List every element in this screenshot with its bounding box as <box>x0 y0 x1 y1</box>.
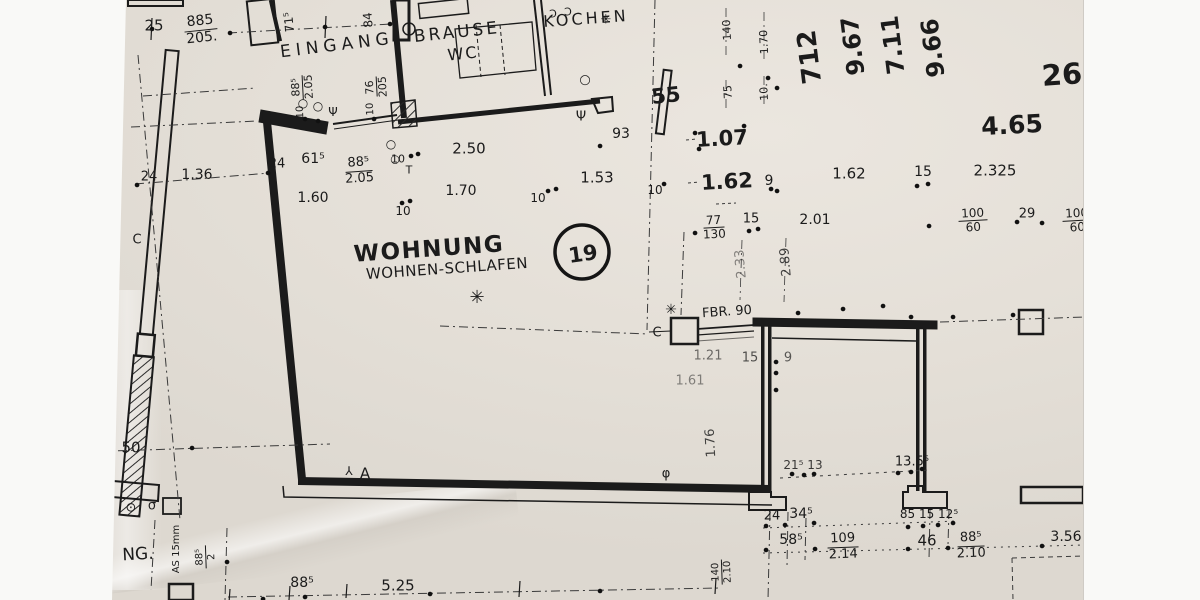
dimension-label: 75 <box>722 85 734 100</box>
door-swing-symbol: ○ <box>390 154 400 165</box>
dimension-fraction: 88⁵2 <box>194 545 218 569</box>
dimension-label: 21⁵ 13 <box>783 459 822 471</box>
dimension-label: 24 <box>141 171 158 184</box>
dimension-label: 140 <box>721 19 733 41</box>
dimension-fraction: 10060 <box>958 206 988 235</box>
dimension-label: 13.5⁵ <box>895 456 929 469</box>
scan-margin-left <box>0 0 130 600</box>
dimension-label: 1.70 <box>445 184 476 198</box>
door-arc-symbol: Ɔ <box>564 7 572 18</box>
dimension-label: 61⁵ <box>301 152 324 166</box>
dimension-label: 55 <box>650 84 681 108</box>
dimension-label: 1.61 <box>676 375 705 388</box>
door-arc-symbol: Ɔ <box>549 9 557 20</box>
dimension-label: 10 <box>395 205 410 217</box>
floor-plan-scan: EINGANGBRAUSEWCKOCHENWOHNUNGWOHNEN-SCHLA… <box>0 0 1200 600</box>
dimension-label: 88⁵ <box>290 576 313 590</box>
dimension-label: 15 <box>914 165 932 179</box>
dimension-label: 2.33 <box>733 249 748 279</box>
dimension-label: 9.66 <box>917 17 948 79</box>
dimension-fraction: 76205 <box>364 75 391 99</box>
room-label-brause: BRAUSE <box>413 20 501 46</box>
dimension-label: 1.76 <box>704 428 718 458</box>
dimension-label: 1.07 <box>696 127 749 151</box>
dimension-label: 712 <box>794 28 826 85</box>
dimension-label: 26 <box>1041 59 1083 91</box>
dimension-label: 24 <box>269 158 286 171</box>
dimension-fraction: 885205. <box>183 12 219 48</box>
fixture-symbol: Ψ <box>328 106 337 118</box>
annotation-layer: EINGANGBRAUSEWCKOCHENWOHNUNGWOHNEN-SCHLA… <box>0 0 1200 600</box>
dimension-label: 2.01 <box>799 213 830 227</box>
dimension-label: 5.25 <box>381 579 414 594</box>
star-symbol: ✳ <box>665 303 677 317</box>
room-label-eingang: EINGANG <box>279 31 394 62</box>
dimension-fraction: 88⁵2.05 <box>290 73 317 101</box>
label-as-15mm: AS 15mm <box>172 525 182 574</box>
dimension-fraction: 1092.14 <box>827 531 859 562</box>
dimension-label: 2.325 <box>974 164 1017 179</box>
fixture-symbol: T <box>406 165 413 176</box>
dimension-label: 10 <box>366 102 377 115</box>
room-label-wc: WC <box>447 44 480 63</box>
dimension-label: 24 <box>764 510 781 523</box>
star-symbol: ✳ <box>601 14 612 27</box>
dimension-label: 1.70 <box>758 29 770 54</box>
switch-symbol: ⅄ <box>345 465 352 477</box>
dimension-label: 34⁵ <box>789 507 812 521</box>
dimension-label: 1.60 <box>297 191 328 205</box>
label-ng: NG. <box>122 546 154 565</box>
section-mark-c: C <box>652 327 661 340</box>
outlet-symbol: ⊙ <box>126 502 137 515</box>
door-swing-symbol: ○ <box>579 74 590 87</box>
section-mark-c: C <box>132 234 141 247</box>
dimension-label: 9.67 <box>837 15 868 77</box>
dimension-label: 85 15 12⁵ <box>900 508 958 520</box>
dimension-fraction: 88⁵2.10 <box>955 530 987 561</box>
outlet-symbol: σ <box>148 500 156 513</box>
dimension-label: 15 <box>743 213 760 226</box>
dimension-label: 29 <box>1019 208 1036 221</box>
dimension-label: 15 <box>742 352 759 365</box>
unit-number: 19 <box>567 240 599 268</box>
dimension-label: 7.11 <box>877 14 908 76</box>
dimension-label: 10. <box>758 83 770 101</box>
dimension-fraction: 88⁵2.05 <box>343 155 376 187</box>
dimension-label: 1.21 <box>694 350 723 363</box>
dimension-label: 71⁵ <box>282 11 296 32</box>
dimension-label: 9 <box>784 352 792 365</box>
label-a: A <box>360 467 370 482</box>
dimension-label: 84 <box>361 12 374 28</box>
dimension-label: 3.56 <box>1050 530 1081 544</box>
dimension-label: 58⁵ <box>779 533 802 547</box>
dimension-label: 10 <box>647 184 662 196</box>
door-swing-symbol: ○ <box>386 138 396 150</box>
dimension-label: 2.50 <box>452 142 485 157</box>
dimension-label: 9 <box>765 174 774 188</box>
star-symbol: ✳ <box>469 289 484 307</box>
dimension-label: 1.53 <box>580 171 613 186</box>
fixture-symbol: Ψ <box>576 111 586 124</box>
dimension-label: 4.65 <box>981 111 1044 139</box>
door-swing-symbol: φ <box>662 468 671 481</box>
dimension-label: 93 <box>612 127 630 141</box>
dimension-fraction: 1402.10 <box>710 559 734 585</box>
dimension-label: 46 <box>917 534 936 549</box>
dimension-label: 2.89 <box>778 247 793 277</box>
door-swing-symbol: ○ <box>313 100 323 112</box>
scan-margin-right <box>1084 0 1200 600</box>
dimension-label: 1.36 <box>181 168 212 182</box>
dimension-fraction: 77130 <box>701 213 727 242</box>
dimension-label: 25 <box>144 19 163 34</box>
dimension-label: 1.62 <box>832 167 865 182</box>
dimension-label: 1.62 <box>701 170 754 194</box>
label-fbr-90: FBR. 90 <box>702 304 753 320</box>
dimension-label: 50 <box>121 441 140 456</box>
dimension-label: 10 <box>530 192 545 204</box>
